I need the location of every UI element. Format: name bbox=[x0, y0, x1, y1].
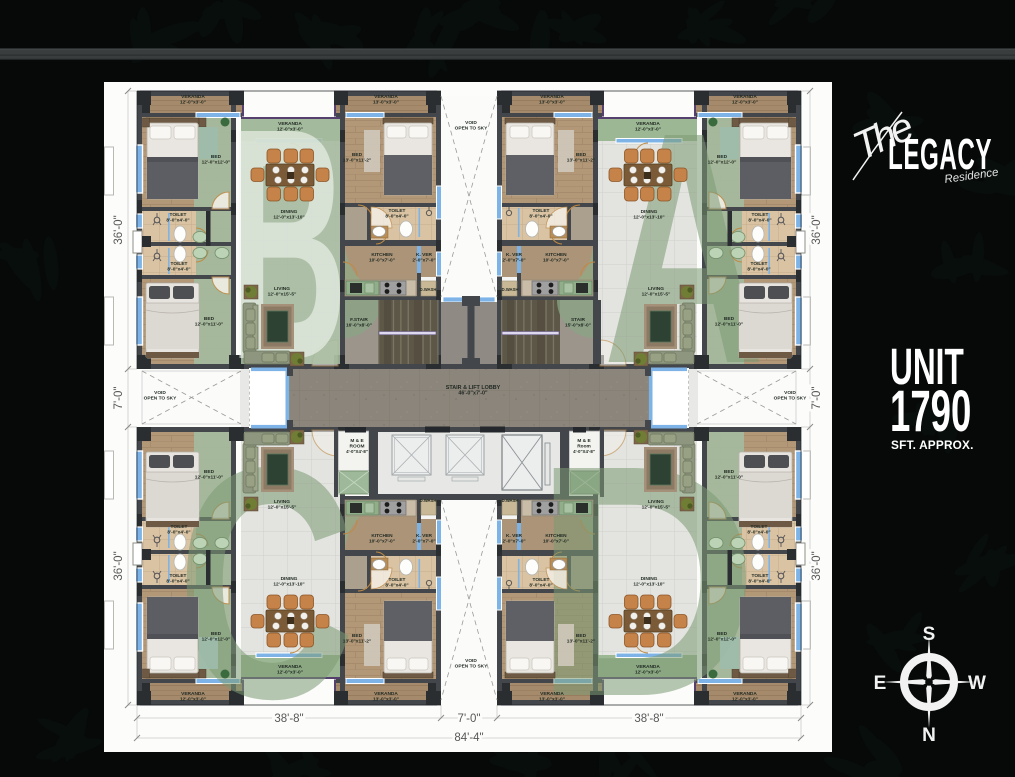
svg-text:OPEN TO SKY: OPEN TO SKY bbox=[455, 664, 488, 670]
svg-text:BED: BED bbox=[717, 631, 728, 637]
svg-text:12'-0"x11'-0": 12'-0"x11'-0" bbox=[715, 322, 743, 328]
svg-text:13'-0"x11'-2": 13'-0"x11'-2" bbox=[343, 639, 371, 645]
svg-text:8'-0"x4'-0": 8'-0"x4'-0" bbox=[166, 579, 189, 585]
svg-text:12'-0"x13'-10": 12'-0"x13'-10" bbox=[633, 582, 664, 588]
svg-text:B: B bbox=[228, 61, 347, 429]
svg-text:KITCHEN: KITCHEN bbox=[545, 533, 567, 539]
svg-text:KITCHEN: KITCHEN bbox=[371, 252, 393, 258]
svg-text:K. VER: K. VER bbox=[416, 533, 433, 539]
svg-text:VOID: VOID bbox=[465, 120, 477, 126]
svg-text:BED: BED bbox=[576, 152, 587, 158]
svg-text:13'-0"x3'-0": 13'-0"x3'-0" bbox=[539, 697, 565, 703]
svg-text:12'-0"x15'-5": 12'-0"x15'-5" bbox=[268, 505, 297, 511]
svg-text:TOILET: TOILET bbox=[752, 212, 769, 218]
svg-text:12'-0"x15'-5": 12'-0"x15'-5" bbox=[268, 292, 297, 298]
svg-text:LIVING: LIVING bbox=[274, 286, 290, 292]
svg-text:LIVING: LIVING bbox=[274, 499, 290, 505]
svg-text:13'-0"x3'-0": 13'-0"x3'-0" bbox=[539, 100, 565, 106]
svg-text:TOILET: TOILET bbox=[171, 524, 188, 530]
svg-text:M & E: M & E bbox=[577, 438, 591, 444]
svg-text:13'-0"x3'-0": 13'-0"x3'-0" bbox=[373, 100, 399, 106]
svg-text:KITCHEN: KITCHEN bbox=[545, 252, 567, 258]
svg-text:BED: BED bbox=[724, 469, 735, 475]
svg-text:36'-0": 36'-0" bbox=[811, 551, 823, 580]
svg-text:8'-0"x4'-0": 8'-0"x4'-0" bbox=[747, 530, 770, 536]
svg-text:BED: BED bbox=[352, 152, 363, 158]
svg-text:VERANDA: VERANDA bbox=[278, 664, 302, 670]
svg-text:TOILET: TOILET bbox=[170, 212, 187, 218]
svg-text:8'-0"x4'-0": 8'-0"x4'-0" bbox=[166, 218, 189, 224]
svg-text:TOILET: TOILET bbox=[533, 208, 550, 214]
svg-text:13'-0"x11'-2": 13'-0"x11'-2" bbox=[567, 639, 595, 645]
svg-text:8'-0"x4'-0": 8'-0"x4'-0" bbox=[748, 218, 771, 224]
svg-text:DINING: DINING bbox=[281, 576, 298, 582]
svg-text:36'-0": 36'-0" bbox=[811, 215, 823, 244]
svg-text:D.WASH: D.WASH bbox=[420, 498, 437, 503]
svg-text:10'-0"x7'-0": 10'-0"x7'-0" bbox=[369, 258, 395, 264]
svg-text:TOILET: TOILET bbox=[533, 577, 550, 583]
svg-text:E: E bbox=[874, 673, 887, 694]
svg-text:10'-0"x7'-0": 10'-0"x7'-0" bbox=[543, 258, 569, 264]
svg-text:38'-8": 38'-8" bbox=[274, 713, 303, 725]
svg-text:8'-0"x4'-0": 8'-0"x4'-0" bbox=[748, 579, 771, 585]
svg-text:12'-0"x12'-0": 12'-0"x12'-0" bbox=[708, 160, 737, 166]
svg-text:VERANDA: VERANDA bbox=[181, 94, 205, 100]
svg-text:2'-0"x7'-0": 2'-0"x7'-0" bbox=[412, 258, 435, 264]
svg-text:36'-0": 36'-0" bbox=[113, 551, 125, 580]
svg-text:TOILET: TOILET bbox=[389, 208, 406, 214]
svg-text:LIVING: LIVING bbox=[648, 286, 664, 292]
svg-text:BED: BED bbox=[576, 633, 587, 639]
svg-text:8'-0"x4'-0": 8'-0"x4'-0" bbox=[167, 530, 190, 536]
svg-text:DINING: DINING bbox=[281, 209, 298, 215]
svg-text:OPEN TO SKY: OPEN TO SKY bbox=[774, 396, 807, 402]
svg-text:2'-0"x7'-0": 2'-0"x7'-0" bbox=[502, 539, 525, 545]
svg-text:10'-0"x7'-0": 10'-0"x7'-0" bbox=[369, 539, 395, 545]
svg-text:VERANDA: VERANDA bbox=[374, 691, 398, 697]
svg-text:12'-0"x15'-5": 12'-0"x15'-5" bbox=[642, 505, 671, 511]
svg-text:12'-0"x3'-0": 12'-0"x3'-0" bbox=[180, 100, 206, 106]
svg-text:12'-0"x13'-10": 12'-0"x13'-10" bbox=[633, 215, 664, 221]
svg-text:7'-0": 7'-0" bbox=[458, 713, 481, 725]
svg-text:1790: 1790 bbox=[890, 380, 971, 445]
svg-text:K. VER: K. VER bbox=[506, 252, 523, 258]
svg-text:K. VER: K. VER bbox=[506, 533, 523, 539]
svg-text:TOILET: TOILET bbox=[170, 573, 187, 579]
svg-text:N: N bbox=[922, 725, 936, 746]
svg-text:12'-0"x12'-0": 12'-0"x12'-0" bbox=[202, 160, 231, 166]
svg-text:12'-0"x11'-0": 12'-0"x11'-0" bbox=[715, 475, 743, 481]
svg-text:BED: BED bbox=[211, 631, 222, 637]
svg-text:VOID: VOID bbox=[154, 390, 166, 396]
svg-text:STAIR: STAIR bbox=[571, 317, 586, 323]
svg-text:12'-0"x3'-0": 12'-0"x3'-0" bbox=[635, 670, 661, 676]
svg-text:D.WASH: D.WASH bbox=[502, 287, 519, 292]
svg-text:13'-0"x11'-2": 13'-0"x11'-2" bbox=[343, 158, 371, 164]
svg-text:2'-0"x7'-0": 2'-0"x7'-0" bbox=[412, 539, 435, 545]
svg-text:2'-0"x7'-0": 2'-0"x7'-0" bbox=[502, 258, 525, 264]
svg-text:VERANDA: VERANDA bbox=[636, 664, 660, 670]
svg-text:84'-4": 84'-4" bbox=[454, 732, 483, 744]
svg-text:VERANDA: VERANDA bbox=[636, 121, 660, 127]
svg-text:VERANDA: VERANDA bbox=[278, 121, 302, 127]
svg-text:36'-0": 36'-0" bbox=[113, 215, 125, 244]
svg-text:BED: BED bbox=[717, 154, 728, 160]
svg-text:TOILET: TOILET bbox=[752, 573, 769, 579]
svg-text:8'-0"x4'-0": 8'-0"x4'-0" bbox=[529, 583, 552, 589]
svg-text:12'-0"x3'-0": 12'-0"x3'-0" bbox=[732, 100, 758, 106]
svg-text:W: W bbox=[968, 673, 986, 694]
svg-text:4'-0"X4'-8": 4'-0"X4'-8" bbox=[346, 449, 368, 454]
svg-text:VOID: VOID bbox=[784, 390, 796, 396]
svg-text:TOILET: TOILET bbox=[171, 261, 188, 267]
svg-text:12'-0"x11'-0": 12'-0"x11'-0" bbox=[195, 475, 223, 481]
svg-text:12'-0"x13'-10": 12'-0"x13'-10" bbox=[273, 582, 304, 588]
svg-text:TOILET: TOILET bbox=[751, 524, 768, 530]
svg-text:VERANDA: VERANDA bbox=[733, 94, 757, 100]
svg-text:D.WASH: D.WASH bbox=[420, 287, 437, 292]
svg-text:12'-0"x15'-5": 12'-0"x15'-5" bbox=[642, 292, 671, 298]
svg-text:10'-0"x7'-0": 10'-0"x7'-0" bbox=[543, 539, 569, 545]
svg-text:12'-0"x12'-0": 12'-0"x12'-0" bbox=[202, 637, 231, 643]
svg-text:13'-0"x3'-0": 13'-0"x3'-0" bbox=[373, 697, 399, 703]
svg-text:12'-0"x3'-0": 12'-0"x3'-0" bbox=[635, 127, 661, 133]
svg-text:VERANDA: VERANDA bbox=[374, 94, 398, 100]
svg-text:TOILET: TOILET bbox=[751, 261, 768, 267]
svg-text:38'-8": 38'-8" bbox=[634, 713, 663, 725]
svg-text:12'-0"x3'-0": 12'-0"x3'-0" bbox=[277, 670, 303, 676]
svg-text:12'-0"x3'-0": 12'-0"x3'-0" bbox=[180, 697, 206, 703]
svg-text:F.STAIR: F.STAIR bbox=[350, 317, 368, 323]
svg-text:8'-0"x4'-0": 8'-0"x4'-0" bbox=[385, 583, 408, 589]
svg-text:12'-0"x11'-0": 12'-0"x11'-0" bbox=[195, 322, 223, 328]
svg-text:VERANDA: VERANDA bbox=[181, 691, 205, 697]
svg-text:12'-0"x13'-10": 12'-0"x13'-10" bbox=[273, 215, 304, 221]
svg-text:46'-0"x7'-0": 46'-0"x7'-0" bbox=[458, 391, 488, 397]
svg-text:OPEN TO SKY: OPEN TO SKY bbox=[455, 126, 488, 132]
svg-text:7'-0": 7'-0" bbox=[113, 387, 125, 410]
svg-text:12'-0"x3'-0": 12'-0"x3'-0" bbox=[732, 697, 758, 703]
svg-text:VERANDA: VERANDA bbox=[540, 94, 564, 100]
svg-text:BED: BED bbox=[204, 316, 215, 322]
svg-text:M & E: M & E bbox=[350, 438, 364, 444]
svg-text:8'-0"x4'-0": 8'-0"x4'-0" bbox=[529, 214, 552, 220]
svg-text:BED: BED bbox=[204, 469, 215, 475]
svg-text:KITCHEN: KITCHEN bbox=[371, 533, 393, 539]
svg-text:SFT. APPROX.: SFT. APPROX. bbox=[891, 438, 974, 452]
svg-text:13'-0"x11'-2": 13'-0"x11'-2" bbox=[567, 158, 595, 164]
svg-text:12'-0"x12'-0": 12'-0"x12'-0" bbox=[708, 637, 737, 643]
svg-text:BED: BED bbox=[352, 633, 363, 639]
svg-text:12'-0"x3'-0": 12'-0"x3'-0" bbox=[277, 127, 303, 133]
svg-text:BED: BED bbox=[724, 316, 735, 322]
svg-text:8'-0"x4'-0": 8'-0"x4'-0" bbox=[167, 267, 190, 273]
svg-text:15'-0"x8'-0": 15'-0"x8'-0" bbox=[565, 323, 591, 329]
svg-text:TOILET: TOILET bbox=[389, 577, 406, 583]
svg-text:D.WASH: D.WASH bbox=[502, 498, 519, 503]
svg-text:BED: BED bbox=[211, 154, 222, 160]
svg-text:DINING: DINING bbox=[641, 209, 658, 215]
svg-text:4'-0"X4'-8": 4'-0"X4'-8" bbox=[573, 449, 595, 454]
svg-text:7'-0": 7'-0" bbox=[811, 387, 823, 410]
svg-text:VERANDA: VERANDA bbox=[540, 691, 564, 697]
svg-text:S: S bbox=[923, 624, 936, 645]
svg-text:DINING: DINING bbox=[641, 576, 658, 582]
svg-text:LIVING: LIVING bbox=[648, 499, 664, 505]
svg-text:OPEN TO SKY: OPEN TO SKY bbox=[144, 396, 177, 402]
svg-text:16'-0"x8'-0": 16'-0"x8'-0" bbox=[346, 323, 372, 329]
svg-text:8'-0"x4'-0": 8'-0"x4'-0" bbox=[747, 267, 770, 273]
svg-text:VOID: VOID bbox=[465, 658, 477, 664]
svg-text:VERANDA: VERANDA bbox=[733, 691, 757, 697]
svg-text:8'-0"x4'-0": 8'-0"x4'-0" bbox=[385, 214, 408, 220]
svg-text:K. VER: K. VER bbox=[416, 252, 433, 258]
